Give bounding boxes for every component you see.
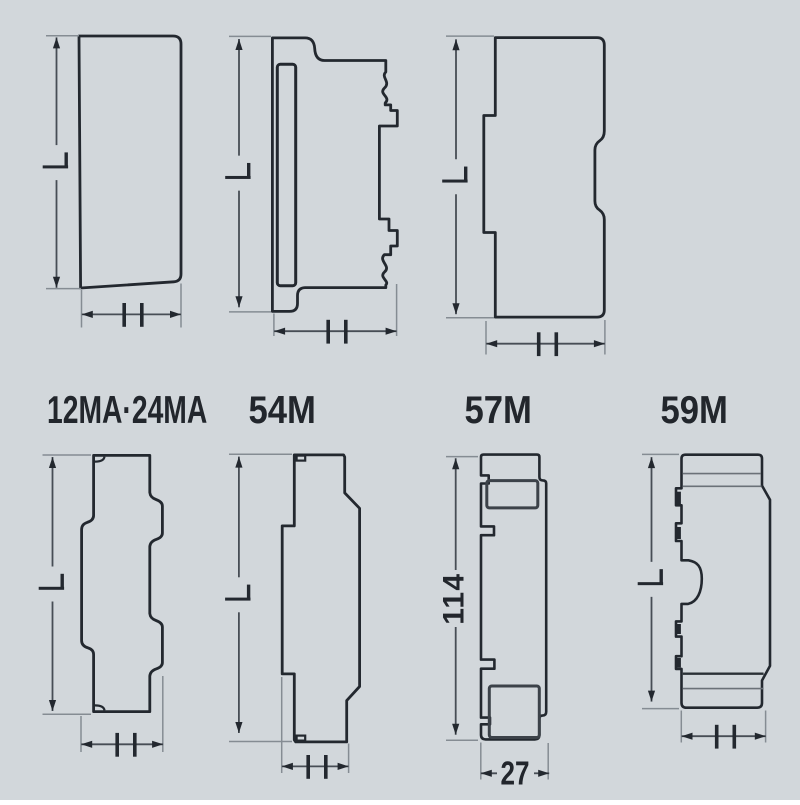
svg-text:57M: 57M [465, 388, 532, 431]
svg-text:54M: 54M [249, 388, 316, 431]
svg-text:59M: 59M [661, 388, 728, 431]
svg-text:12MA·24MA: 12MA·24MA [47, 389, 207, 432]
svg-text:27: 27 [501, 755, 530, 792]
svg-text:114: 114 [438, 573, 471, 625]
